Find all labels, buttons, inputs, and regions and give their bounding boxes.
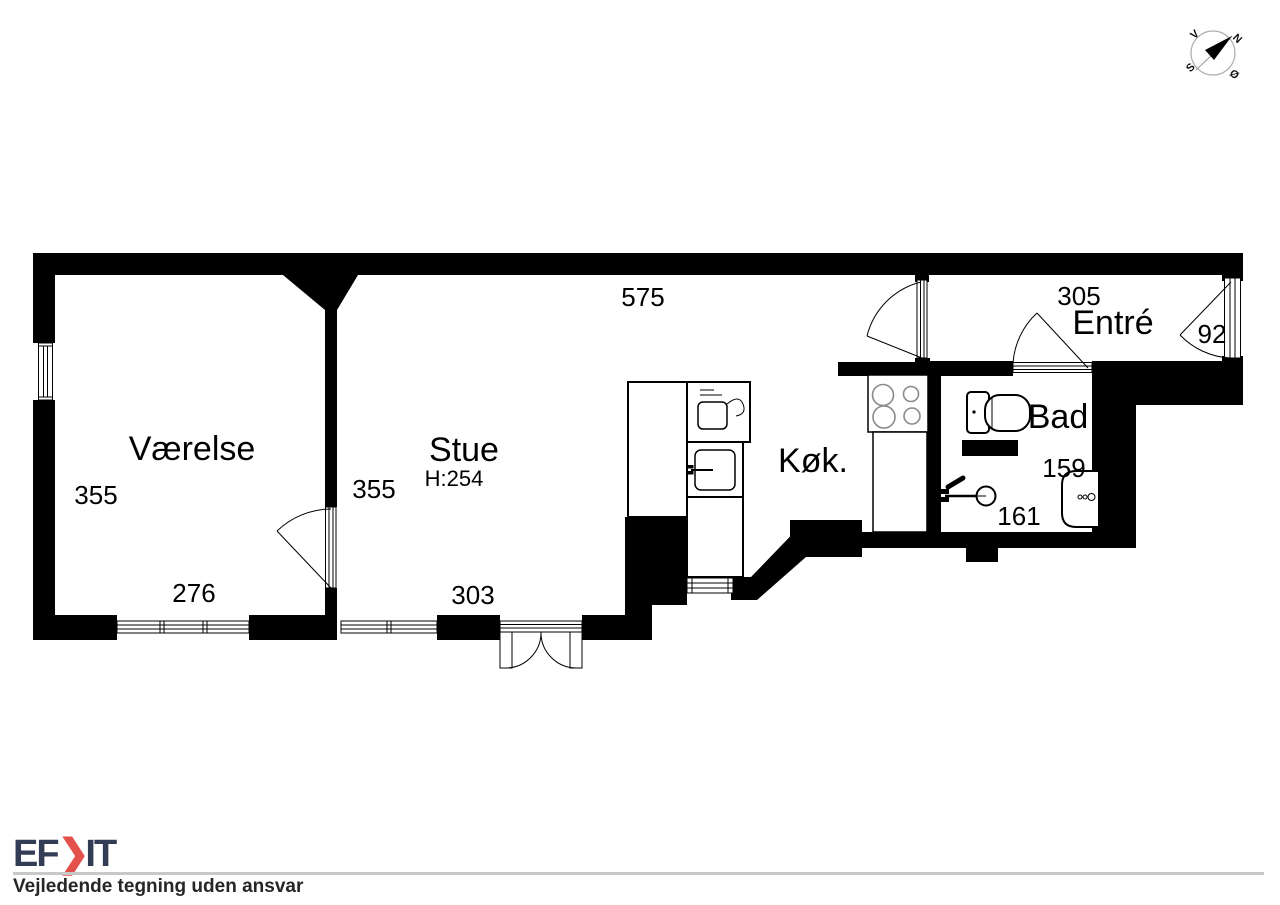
room-label-koekken: Køk. — [778, 442, 848, 480]
efkit-logo: EF❯IT — [13, 831, 115, 876]
kitchen-sink-unit — [687, 382, 750, 442]
compass-needle — [1205, 36, 1232, 60]
dim-stue-width: 355 — [352, 474, 395, 504]
logo-ef: EF — [13, 833, 58, 875]
room-label-stue: Stue — [429, 431, 499, 469]
door-french-stue — [500, 621, 582, 668]
chamfer-wall — [283, 275, 358, 310]
window-stue-south — [341, 621, 437, 633]
dim-stue-ceiling-height: H:254 — [425, 466, 484, 491]
compass-south: S — [1184, 61, 1198, 75]
kitchen-tall-unit — [628, 382, 687, 517]
compass-north: N — [1230, 32, 1244, 46]
room-label-bad: Bad — [1028, 398, 1089, 436]
door-vaerelse — [277, 507, 336, 588]
dim-entre-width: 92 — [1198, 319, 1227, 349]
logo-chevron-icon: ❯ — [58, 833, 86, 875]
door-corridor-entre — [867, 280, 927, 358]
window-vaerelse-south — [117, 621, 249, 633]
kitchen-oven-unit — [687, 442, 743, 497]
logo-it: IT — [85, 833, 115, 875]
window-left-wall — [39, 343, 53, 400]
kitchen-counter — [873, 432, 927, 532]
compass-east: Ø — [1227, 67, 1242, 82]
footer-disclaimer: Vejledende tegning uden ansvar — [13, 876, 303, 898]
dim-bad-sink: 159 — [1042, 453, 1085, 483]
dim-entre-length: 305 — [1057, 281, 1100, 311]
dim-vaerelse-length: 276 — [172, 578, 215, 608]
compass-icon: V N S Ø — [1184, 27, 1244, 82]
room-label-vaerelse: Værelse — [129, 430, 256, 468]
dim-vaerelse-width: 355 — [74, 480, 117, 510]
stove — [868, 375, 928, 432]
floorplan-svg: Værelse 355 276 Stue H:254 355 303 575 K… — [0, 0, 1280, 905]
dim-stue-door: 303 — [451, 580, 494, 610]
dim-stue-top: 575 — [621, 282, 664, 312]
floorplan-canvas: Værelse 355 276 Stue H:254 355 303 575 K… — [0, 0, 1280, 905]
footer-divider — [13, 872, 1264, 875]
shower-mixer — [941, 478, 996, 506]
kitchen-base-unit — [687, 497, 743, 577]
window-kitchen-hatch — [687, 578, 733, 593]
toilet — [967, 392, 1030, 433]
dim-bad-shower: 161 — [997, 501, 1040, 531]
